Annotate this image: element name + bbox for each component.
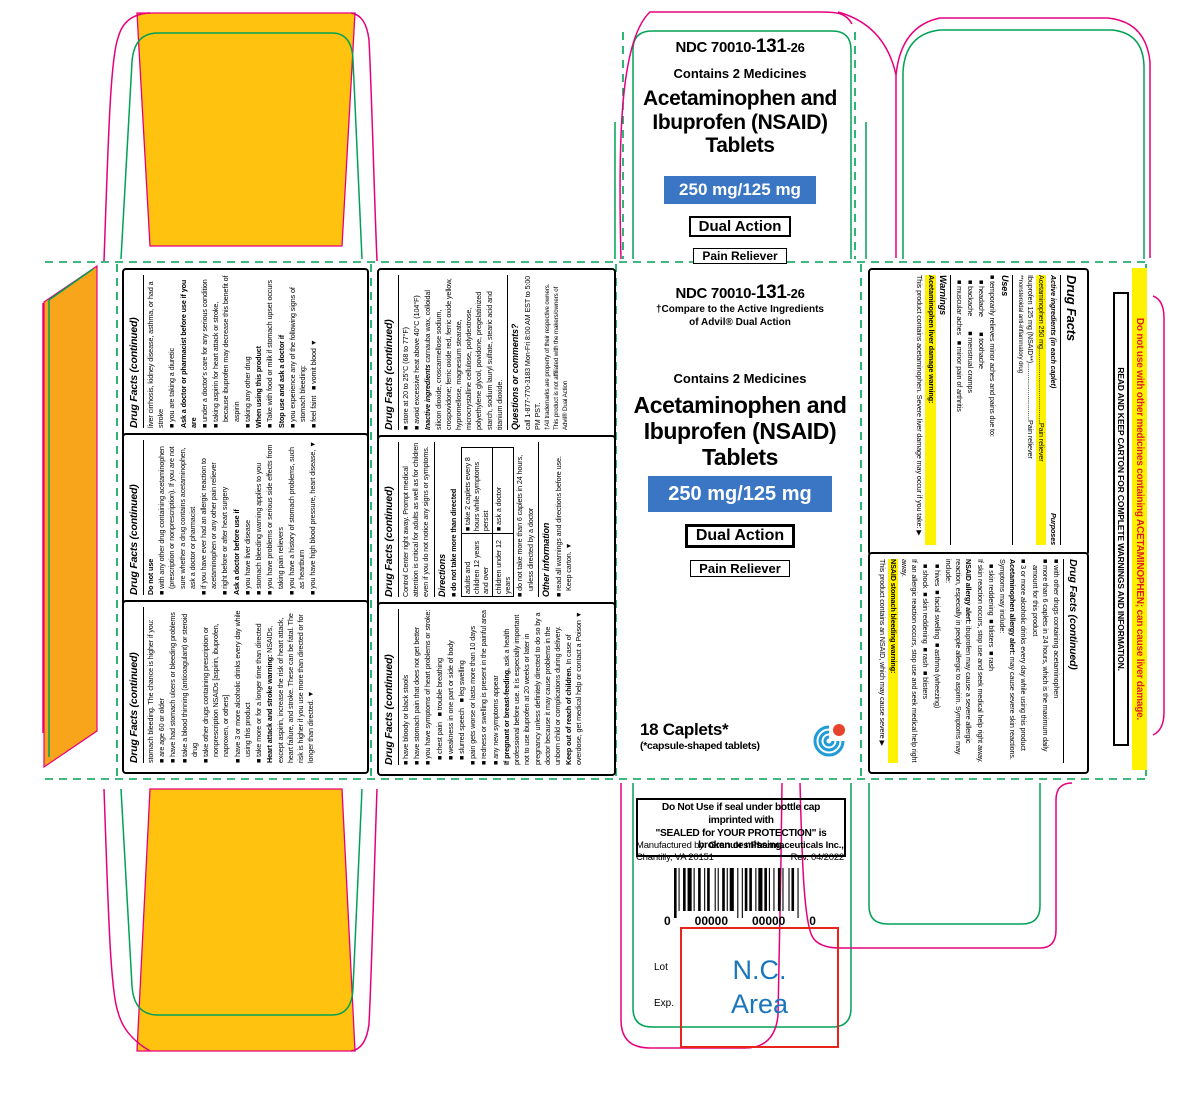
df-line: ■ skin reddening ■ blisters ■ rash bbox=[986, 559, 996, 763]
df-line: ■ you are taking a diuretic bbox=[167, 275, 177, 428]
df-line: Do not use bbox=[146, 440, 156, 595]
df-line: ■ if you have ever had an allergic react… bbox=[199, 440, 219, 595]
df-line: ■ slurred speech ■ leg swelling bbox=[457, 609, 467, 765]
df-line: Ask a doctor or pharmacist before use if… bbox=[179, 275, 199, 428]
df-line: ■ you experience any of the following si… bbox=[288, 275, 308, 428]
df-line: This product contains an NSAID, which ma… bbox=[876, 559, 886, 763]
df-line: ■ take other drugs containing prescripti… bbox=[201, 607, 232, 763]
df-line: ■ shock ■ skin reddening ■ rash ■ bliste… bbox=[920, 559, 930, 763]
df-line: ■ have stomach pain that does not get be… bbox=[412, 609, 422, 765]
count-note: (*capsule-shaped tablets) bbox=[640, 740, 760, 752]
top-left-orange-flap bbox=[137, 13, 355, 246]
bottom-left-orange-flap bbox=[137, 789, 355, 1051]
df-line: ■ you have a history of stomach problems… bbox=[287, 440, 307, 595]
ndc-number: NDC 70010-131-26 bbox=[622, 282, 858, 304]
df-line: †All trademarks are property of their re… bbox=[544, 275, 570, 430]
df-line: Active ingredients (in each caplet)Purpo… bbox=[1047, 275, 1057, 545]
top-flap-panel: NDC 70010-131-26 Contains 2 Medicines Ac… bbox=[622, 10, 858, 262]
product-title: Acetaminophen andIbuprofen (NSAID)Tablet… bbox=[622, 392, 858, 470]
df-line: Ibuprofen 125 mg (NSAID**)..............… bbox=[1025, 275, 1035, 545]
df-line: adults and children 12 years and over■ t… bbox=[461, 447, 515, 597]
nc-area: N.C.Area bbox=[681, 928, 838, 1047]
df-line: ■ do not take more than directed bbox=[449, 442, 459, 597]
df-line: ■ store at 20 to 25°C (68 to 77°F) bbox=[401, 275, 411, 430]
df-line: liver cirrhosis, kidney disease, asthma,… bbox=[146, 275, 166, 428]
pain-reliever-badge: Pain Reliever bbox=[693, 248, 786, 264]
right-glue-flap: Do not use with other medicines containi… bbox=[1090, 268, 1148, 770]
df-line: Uses bbox=[998, 275, 1013, 545]
df-line: ■ you have symptoms of heart problems or… bbox=[423, 609, 433, 765]
df-line: ■ backache ■ menstrual cramps bbox=[965, 275, 975, 545]
df-line: ■ weakness in one part or side of body bbox=[446, 609, 456, 765]
nc-area-text: N.C.Area bbox=[731, 954, 788, 1022]
df-line: Heart attack and stroke warning: NSAIDs,… bbox=[265, 607, 316, 763]
df-line: Ask a doctor before use if bbox=[232, 440, 242, 595]
df-line: **nonsteroidal anti-inflammatory drug bbox=[1015, 275, 1024, 545]
df-line: ■ avoid excessive heat above 40°C (104°F… bbox=[412, 275, 422, 430]
df-line: Drug Facts (continued) bbox=[382, 275, 399, 430]
drug-facts-panel-M3: Drug Facts (continued)■ have bloody or b… bbox=[377, 602, 616, 776]
contains-label: Contains 2 Medicines bbox=[622, 66, 858, 81]
df-line: ■ redness or swelling is present in the … bbox=[479, 609, 489, 765]
df-line: ■ take a blood thinning (anticoagulant) … bbox=[180, 607, 200, 763]
df-line: ■ feel faint ■ vomit blood ▼ bbox=[309, 275, 319, 428]
df-line: Drug Facts (continued) bbox=[1063, 559, 1080, 763]
manufacturer-info: Manufactured by: Granules Pharmaceutical… bbox=[636, 840, 844, 865]
df-line: Drug Facts (continued) bbox=[127, 440, 144, 595]
df-line: ■ pain gets worse or lasts more than 10 … bbox=[468, 609, 478, 765]
df-line: ■ stomach bleeding warning applies to yo… bbox=[254, 440, 264, 595]
df-line: NSAID allergy alert: ibuprofen may cause… bbox=[943, 559, 974, 763]
df-line: This product contains acetaminophen. Sev… bbox=[914, 275, 924, 545]
df-line: ■ right before or after heart surgery bbox=[220, 440, 230, 595]
df-line: Inactive ingredients carnauba wax, collo… bbox=[423, 275, 505, 430]
df-line: ■ do not take more than 6 caplets in 24 … bbox=[515, 442, 535, 597]
df-line: ■ muscular aches ■ minor pain of arthrit… bbox=[953, 275, 963, 545]
df-line: stomach bleeding. The chance is higher i… bbox=[146, 607, 156, 763]
brand-logo-icon bbox=[808, 720, 850, 762]
df-line: Acetaminophen allergy alert: may cause s… bbox=[997, 559, 1017, 763]
barcode-digits: 000000000000 bbox=[664, 914, 816, 928]
df-line: Drug Facts (continued) bbox=[382, 609, 399, 765]
df-line: ■ have 3 or more alcoholic drinks every … bbox=[233, 607, 253, 763]
df-line: Control Center right away. Prompt medica… bbox=[401, 442, 432, 597]
principal-display-panel: NDC 70010-131-26 †Compare to the Active … bbox=[622, 268, 858, 770]
df-line: ■ 3 or more alcoholic drinks every day w… bbox=[1018, 559, 1028, 763]
df-line: NSAID stomach bleeding warning: bbox=[888, 559, 898, 763]
df-line: ■ take more or for a longer time than di… bbox=[254, 607, 264, 763]
drug-facts-panel-continued: Drug Facts (continued)■ with other drugs… bbox=[868, 552, 1089, 774]
df-line: ■ Take with food or milk if stomach upse… bbox=[265, 275, 275, 428]
df-line: When using this product bbox=[254, 275, 264, 428]
drug-facts-panel-M2: Drug Facts (continued)Control Center rig… bbox=[377, 435, 616, 608]
acetaminophen-warning-banner: Do not use with other medicines containi… bbox=[1132, 268, 1147, 770]
bottom-flap-panel: Do Not Use if seal under bottle cap impr… bbox=[622, 782, 858, 1048]
compare-statement: †Compare to the Active Ingredientsof Adv… bbox=[622, 304, 858, 329]
df-line: ■ taking any other drug bbox=[243, 275, 253, 428]
df-line: ■ with other drugs containing acetaminop… bbox=[1051, 559, 1061, 763]
df-line: ■ have bloody or black stools bbox=[401, 609, 411, 765]
df-line: ■ chest pain ■ trouble breathing bbox=[435, 609, 445, 765]
upc-barcode bbox=[664, 868, 816, 920]
df-line: If an allergic reaction occurs, stop use… bbox=[899, 559, 919, 763]
df-line: ■ taking aspirin for heart attack or str… bbox=[211, 275, 242, 428]
product-title: Acetaminophen andIbuprofen (NSAID)Tablet… bbox=[622, 87, 858, 158]
df-line: ■ you have problems or serious side effe… bbox=[265, 440, 285, 595]
lot-label: Lot bbox=[654, 962, 668, 973]
df-line: Questions or comments? bbox=[507, 275, 522, 430]
dual-action-badge: Dual Action bbox=[685, 524, 795, 548]
count-label: 18 Caplets* bbox=[640, 720, 760, 740]
df-line: Acetaminophen liver damage warning: bbox=[925, 275, 935, 545]
drug-facts-panel-L3: Drug Facts (continued)stomach bleeding. … bbox=[122, 600, 369, 774]
df-line: Stop use and ask a doctor if bbox=[277, 275, 287, 428]
df-line: Warnings bbox=[937, 275, 952, 545]
df-line: ■ under a doctor's care for any serious … bbox=[200, 275, 210, 428]
df-line: Other information bbox=[538, 442, 553, 597]
df-line: ■ read all warnings and directions befor… bbox=[554, 442, 574, 597]
df-line: Directions bbox=[434, 442, 449, 597]
df-line: ■ you have high blood pressure, heart di… bbox=[308, 440, 318, 595]
drug-facts-panel-M1: Drug Facts (continued)■ store at 20 to 2… bbox=[377, 268, 616, 441]
df-line: ■ temporarily relieves minor aches and p… bbox=[987, 275, 997, 545]
drug-facts-panel-L1: Drug Facts (continued)liver cirrhosis, k… bbox=[122, 268, 369, 439]
df-line: ■ are age 60 or older bbox=[157, 607, 167, 763]
drug-facts-panel-L2: Drug Facts (continued)Do not use■ with a… bbox=[122, 433, 369, 606]
df-line: If skin reaction occurs, stop use and se… bbox=[974, 559, 984, 763]
dual-action-badge: Dual Action bbox=[689, 216, 792, 237]
df-line: Drug Facts (continued) bbox=[127, 607, 144, 763]
exp-label: Exp. bbox=[654, 998, 674, 1009]
df-line: ■ more than 6 caplets in 24 hours, which… bbox=[1029, 559, 1049, 763]
ndc-number: NDC 70010-131-26 bbox=[622, 36, 858, 58]
pain-reliever-badge: Pain Reliever bbox=[690, 560, 790, 577]
strength-badge: 250 mg/125 mg bbox=[648, 476, 832, 512]
read-keep-carton-note: READ AND KEEP CARTON FOR COMPLETE WARNIN… bbox=[1113, 292, 1129, 746]
revision-label: Rev. 04/2022 bbox=[791, 852, 844, 864]
df-line: ■ hives ■ facial swelling ■ asthma (whee… bbox=[931, 559, 941, 763]
df-line: Drug Facts bbox=[1060, 275, 1080, 545]
strength-badge: 250 mg/125 mg bbox=[664, 176, 816, 204]
left-glue-strip bbox=[44, 266, 97, 767]
df-line: Keep out of reach of children. In case o… bbox=[564, 609, 584, 765]
df-line: ■ you have liver disease bbox=[243, 440, 253, 595]
df-line: call 1-877-770-3183 Mon-Fri 8:00 AM EST … bbox=[523, 275, 543, 430]
carton-dieline: { "colors":{"orange_flap":"#FFC20E","ora… bbox=[0, 0, 1180, 1099]
drug-facts-panel-main: Drug FactsActive ingredients (in each ca… bbox=[868, 268, 1089, 556]
contains-label: Contains 2 Medicines bbox=[622, 371, 858, 386]
df-line: Acetaminophen 250 mg....................… bbox=[1036, 275, 1046, 545]
df-line: ■ headache ■ toothache bbox=[976, 275, 986, 545]
df-line: Drug Facts (continued) bbox=[127, 275, 144, 428]
df-line: ■ any new symptoms appear bbox=[491, 609, 501, 765]
df-line: ■ with any other drug containing acetami… bbox=[157, 440, 198, 595]
df-line: ■ have had stomach ulcers or bleeding pr… bbox=[168, 607, 178, 763]
df-line: If pregnant or breast-feeding, ask a hea… bbox=[502, 609, 563, 765]
df-line: Drug Facts (continued) bbox=[382, 442, 399, 597]
